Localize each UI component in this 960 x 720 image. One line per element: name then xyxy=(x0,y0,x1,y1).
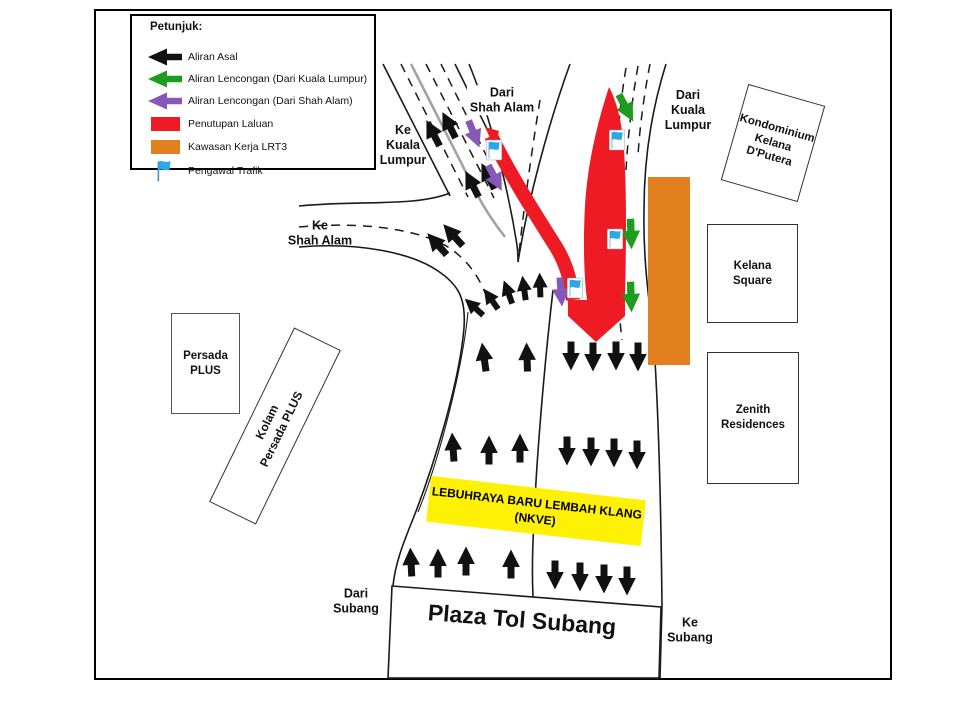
original-flow-arrow-icon xyxy=(502,550,520,579)
original-flow-arrow-icon xyxy=(515,275,533,301)
building-kelana-square: Kelana Square xyxy=(707,224,798,323)
legend-item-closure: Penutupan Laluan xyxy=(142,114,273,134)
original-flow-arrow-icon xyxy=(595,565,613,594)
legend-item-label: Aliran Asal xyxy=(188,51,238,63)
building-zenith-residences: Zenith Residences xyxy=(707,352,799,484)
original-flow-arrow-icon xyxy=(518,342,537,372)
original-flow-arrow-icon xyxy=(584,343,602,372)
legend-item-label: Pengawal Trafik xyxy=(188,165,263,177)
traffic-marshal-flag-icon xyxy=(567,278,583,298)
road-closure-ramp xyxy=(491,136,573,300)
legend-item-label: Aliran Lencongan (Dari Kuala Lumpur) xyxy=(188,73,367,85)
original-flow-arrow-icon xyxy=(546,561,564,590)
original-flow-arrow-icon xyxy=(629,343,647,372)
original-flow-arrow-icon xyxy=(607,342,625,371)
road-edge xyxy=(299,246,464,586)
road-edge xyxy=(299,193,450,206)
original-flow-arrow-icon xyxy=(480,436,498,465)
original-flow-arrow-icon xyxy=(628,441,646,470)
road-closure-swatch xyxy=(142,117,188,131)
lane-line xyxy=(519,100,540,253)
original-flow-arrow-icon xyxy=(473,341,494,372)
traffic-marshal-flag-icon xyxy=(609,130,625,150)
building-label: Kondominium Kelana D'Putera xyxy=(730,111,817,175)
road-edge xyxy=(644,64,666,678)
legend-item-work-area: Kawasan Kerja LRT3 xyxy=(142,137,287,157)
legend-item-kl-diversion: Aliran Lencongan (Dari Kuala Lumpur) xyxy=(142,69,367,89)
label-ke-subang: Ke Subang xyxy=(667,615,713,645)
original-flow-arrow-icon xyxy=(497,278,519,306)
traffic-marshal-flag-icon xyxy=(142,159,188,183)
traffic-marshal-flag-icon xyxy=(607,229,623,249)
original-flow-arrow-icon xyxy=(558,437,576,466)
legend-item-label: Aliran Lencongan (Dari Shah Alam) xyxy=(188,95,353,107)
carriageway-divider xyxy=(532,290,553,597)
original-flow-arrow-icon xyxy=(457,547,475,576)
label-dari-subang: Dari Subang xyxy=(333,586,379,616)
traffic-marshal-flag-icon xyxy=(486,140,502,160)
original-flow-arrow-icon xyxy=(511,434,529,463)
legend-box: Petunjuk: Aliran Asal Aliran Lencongan (… xyxy=(130,14,376,170)
label-dari-kuala-lumpur: Dari Kuala Lumpur xyxy=(665,88,712,132)
legend-title: Petunjuk: xyxy=(150,21,202,33)
lrt3-work-area-swatch xyxy=(142,140,188,154)
building-label: Zenith Residences xyxy=(721,403,785,433)
road-closure-area xyxy=(568,87,626,342)
label-ke-shah-alam: Ke Shah Alam xyxy=(288,218,352,248)
label-dari-shah-alam: Dari Shah Alam xyxy=(467,85,537,115)
original-flow-arrow-icon xyxy=(562,342,580,371)
original-flow-arrow-icon xyxy=(401,547,420,577)
original-flow-arrow-icon xyxy=(582,438,600,467)
sa-diversion-arrow-icon xyxy=(142,92,188,110)
traffic-diversion-map: Petunjuk: Aliran Asal Aliran Lencongan (… xyxy=(0,0,960,720)
original-flow-arrow-icon xyxy=(571,563,589,592)
original-flow-arrow-icon xyxy=(429,549,447,578)
original-flow-arrow-icon xyxy=(618,567,636,596)
legend-item-original-flow: Aliran Asal xyxy=(142,47,238,67)
kl-diversion-arrow-icon xyxy=(142,70,188,88)
legend-item-sa-diversion: Aliran Lencongan (Dari Shah Alam) xyxy=(142,91,353,111)
building-label: Kelana Square xyxy=(733,259,772,289)
building-persada-plus: Persada PLUS xyxy=(171,313,240,414)
building-label: Persada PLUS xyxy=(183,349,228,379)
original-flow-arrow-icon xyxy=(142,48,188,66)
label-ke-kuala-lumpur: Ke Kuala Lumpur xyxy=(380,123,427,167)
original-flow-arrow-icon xyxy=(478,285,504,314)
legend-item-marshal: Pengawal Trafik xyxy=(142,159,263,183)
legend-item-label: Penutupan Laluan xyxy=(188,118,273,130)
original-flow-arrow-icon xyxy=(605,439,623,468)
original-flow-arrow-icon xyxy=(443,432,463,462)
original-flow-arrow-icon xyxy=(532,272,548,297)
lrt3-work-area xyxy=(648,177,690,365)
legend-item-label: Kawasan Kerja LRT3 xyxy=(188,141,287,153)
